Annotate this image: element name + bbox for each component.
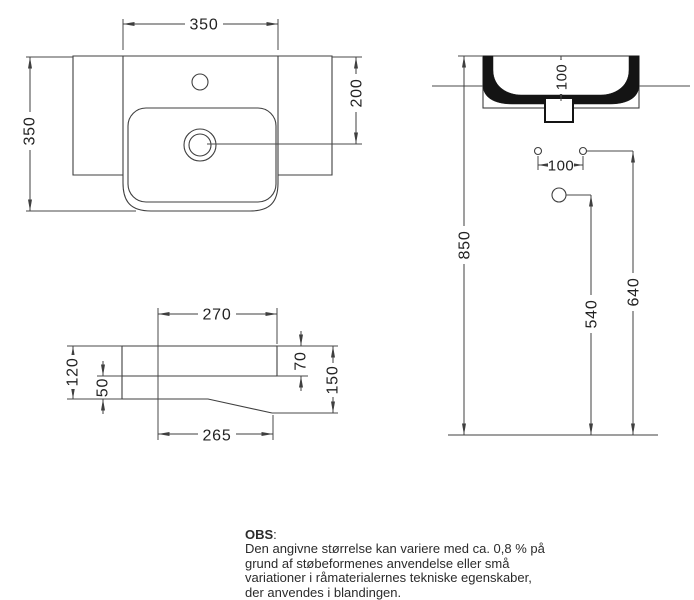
svg-text:850: 850: [457, 230, 474, 259]
note-line: Den angivne størrelse kan variere med ca…: [245, 542, 575, 556]
section-view: 100 100 850 540: [432, 56, 690, 435]
side-profile-view: 270 265 120 50: [64, 306, 342, 445]
svg-text:150: 150: [325, 365, 342, 394]
waste-pipe-hole: [552, 188, 566, 202]
svg-text:540: 540: [584, 299, 601, 328]
dim-label-540: 540: [583, 295, 601, 333]
dim-label-50: 50: [95, 378, 112, 397]
dim-label-120: 120: [64, 355, 82, 389]
dim-top-width: 350: [123, 16, 278, 50]
dim-label-265: 265: [202, 428, 231, 445]
note-colon: :: [273, 527, 277, 542]
note-title-line: OBS:: [245, 528, 575, 542]
dim-bolt-spacing: 100: [538, 156, 583, 174]
svg-text:70: 70: [293, 351, 310, 370]
extension-lines: [26, 57, 136, 211]
technical-drawing-page: 350 350 200 100: [0, 0, 694, 600]
dim-label-100-depth: 100: [553, 60, 570, 94]
dim-label-100-spacing: 100: [548, 157, 575, 174]
drain-outlet: [545, 98, 573, 122]
dim-label-150: 150: [324, 363, 342, 397]
svg-text:200: 200: [349, 78, 366, 107]
note-block: OBS: Den angivne størrelse kan variere m…: [245, 528, 575, 600]
dim-top-depth: 270: [158, 306, 277, 440]
washbasin-dimension-drawing: 350 350 200 100: [0, 0, 694, 600]
dim-bottom-depth: 265: [158, 415, 273, 445]
svg-text:100: 100: [553, 64, 570, 91]
note-line: der anvendes i blandingen.: [245, 586, 575, 600]
svg-text:350: 350: [22, 116, 39, 145]
dim-label-850: 850: [456, 226, 474, 264]
svg-text:640: 640: [626, 277, 643, 306]
fixing-bolt-hole-left: [535, 148, 542, 155]
dim-front-height: 120: [64, 346, 122, 399]
svg-text:120: 120: [65, 357, 82, 386]
dim-label-350-left: 350: [21, 112, 39, 150]
dim-label-640: 640: [625, 273, 643, 311]
note-line: variationer i råmaterialernes tekniske e…: [245, 571, 575, 585]
dim-drain-height: 540: [583, 195, 601, 435]
svg-text:50: 50: [95, 378, 112, 397]
dim-bottom-front-height: 50: [95, 361, 122, 414]
note-line: grund af støbeformenes anvendelse eller …: [245, 557, 575, 571]
top-view: 350 350 200: [21, 16, 366, 211]
profile-outline: [122, 346, 277, 413]
extension-lines: [158, 308, 277, 440]
dim-label-270: 270: [202, 307, 231, 324]
fixing-bolt-hole-right: [580, 148, 587, 155]
dim-label-200: 200: [348, 74, 366, 112]
dim-left-depth: 350: [21, 57, 136, 211]
dim-rim-height: 850: [456, 56, 483, 435]
dim-label-350-top: 350: [189, 17, 218, 34]
dim-label-70: 70: [293, 351, 310, 370]
dim-bolt-height: 640: [625, 151, 643, 435]
note-title: OBS: [245, 527, 273, 542]
